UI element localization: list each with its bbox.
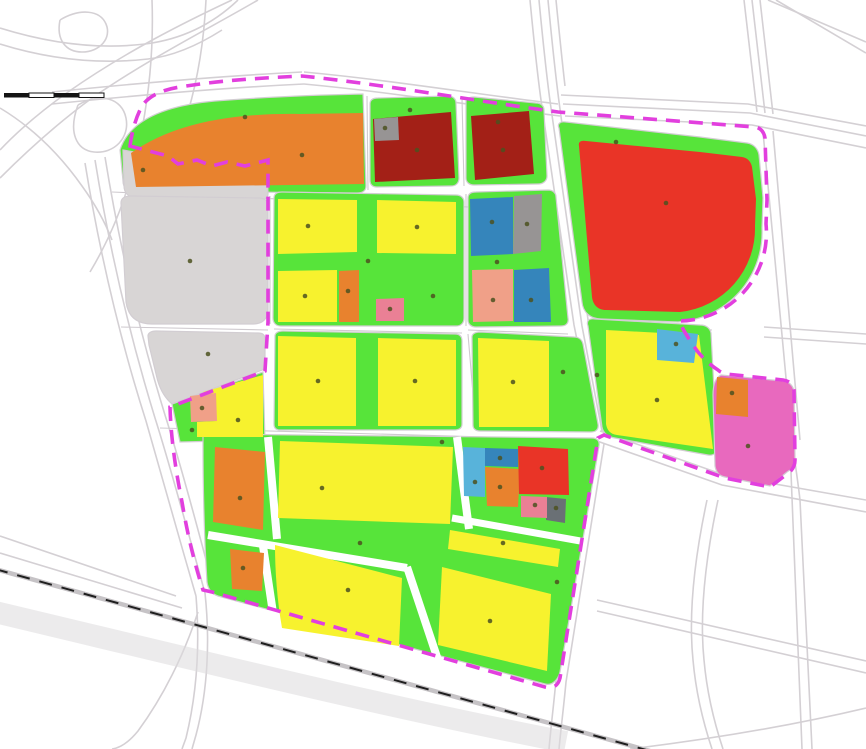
scale-bar-segment xyxy=(79,93,104,98)
parcel-blue[interactable] xyxy=(470,197,513,256)
label-dot xyxy=(496,120,501,125)
scale-bar-segment xyxy=(29,93,54,98)
parcel-orange[interactable] xyxy=(213,447,265,530)
label-dot xyxy=(511,380,516,385)
label-dot xyxy=(141,168,146,173)
label-dot xyxy=(358,541,363,546)
label-dot xyxy=(383,126,388,131)
label-dot xyxy=(595,373,600,378)
parcel-dark-red[interactable] xyxy=(471,111,534,180)
label-dot xyxy=(206,352,211,357)
parcel-red[interactable] xyxy=(518,446,569,495)
label-dot xyxy=(655,398,660,403)
label-dot xyxy=(501,541,506,546)
label-dot xyxy=(488,619,493,624)
label-dot xyxy=(190,428,195,433)
parcel-red[interactable] xyxy=(579,141,756,312)
label-dot xyxy=(303,294,308,299)
label-dot xyxy=(306,224,311,229)
label-dot xyxy=(495,260,500,265)
parcel-orange[interactable] xyxy=(716,377,748,417)
label-dot xyxy=(473,480,478,485)
label-dot xyxy=(491,298,496,303)
label-dot xyxy=(346,289,351,294)
label-dot xyxy=(664,201,669,206)
parcel-orange[interactable] xyxy=(339,270,359,322)
label-dot xyxy=(415,225,420,230)
label-dot xyxy=(408,108,413,113)
label-dot xyxy=(241,566,246,571)
label-dot xyxy=(529,298,534,303)
parcel-salmon[interactable] xyxy=(472,269,513,322)
scale-bar-segment xyxy=(54,93,79,98)
label-dot xyxy=(501,148,506,153)
parcel-light-blue[interactable] xyxy=(657,329,698,363)
label-dot xyxy=(388,307,393,312)
label-dot xyxy=(415,148,420,153)
label-dot xyxy=(561,370,566,375)
label-dot xyxy=(346,588,351,593)
parcel-orange[interactable] xyxy=(230,549,264,591)
label-dot xyxy=(238,496,243,501)
label-dot xyxy=(533,503,538,508)
label-dot xyxy=(413,379,418,384)
parcel-yellow[interactable] xyxy=(278,441,453,524)
label-dot xyxy=(320,486,325,491)
parcel-orange[interactable] xyxy=(485,467,520,507)
label-dot xyxy=(730,391,735,396)
label-dot xyxy=(498,485,503,490)
label-dot xyxy=(554,506,559,511)
scale-bar xyxy=(4,93,104,98)
label-dot xyxy=(188,259,193,264)
label-dot xyxy=(200,406,205,411)
label-dot xyxy=(236,418,241,423)
parcel-gray[interactable] xyxy=(121,196,268,324)
label-dot xyxy=(614,140,619,145)
label-dot xyxy=(746,444,751,449)
parcel-yellow[interactable] xyxy=(278,270,337,322)
label-dot xyxy=(540,466,545,471)
label-dot xyxy=(300,153,305,158)
label-dot xyxy=(243,115,248,120)
scale-bar-segment xyxy=(4,93,29,98)
label-dot xyxy=(525,222,530,227)
parcel-yellow[interactable] xyxy=(278,199,357,254)
label-dot xyxy=(498,456,503,461)
label-dot xyxy=(490,220,495,225)
label-dot xyxy=(366,259,371,264)
label-dot xyxy=(440,440,445,445)
label-dot xyxy=(555,580,560,585)
label-dot xyxy=(431,294,436,299)
label-dot xyxy=(674,342,679,347)
land-use-map[interactable] xyxy=(0,0,866,749)
label-dot xyxy=(316,379,321,384)
pink-corner-orange xyxy=(716,377,748,417)
planning-map-canvas[interactable] xyxy=(0,0,866,749)
parcel-blue[interactable] xyxy=(514,268,551,322)
parcel-light-blue[interactable] xyxy=(463,447,485,497)
